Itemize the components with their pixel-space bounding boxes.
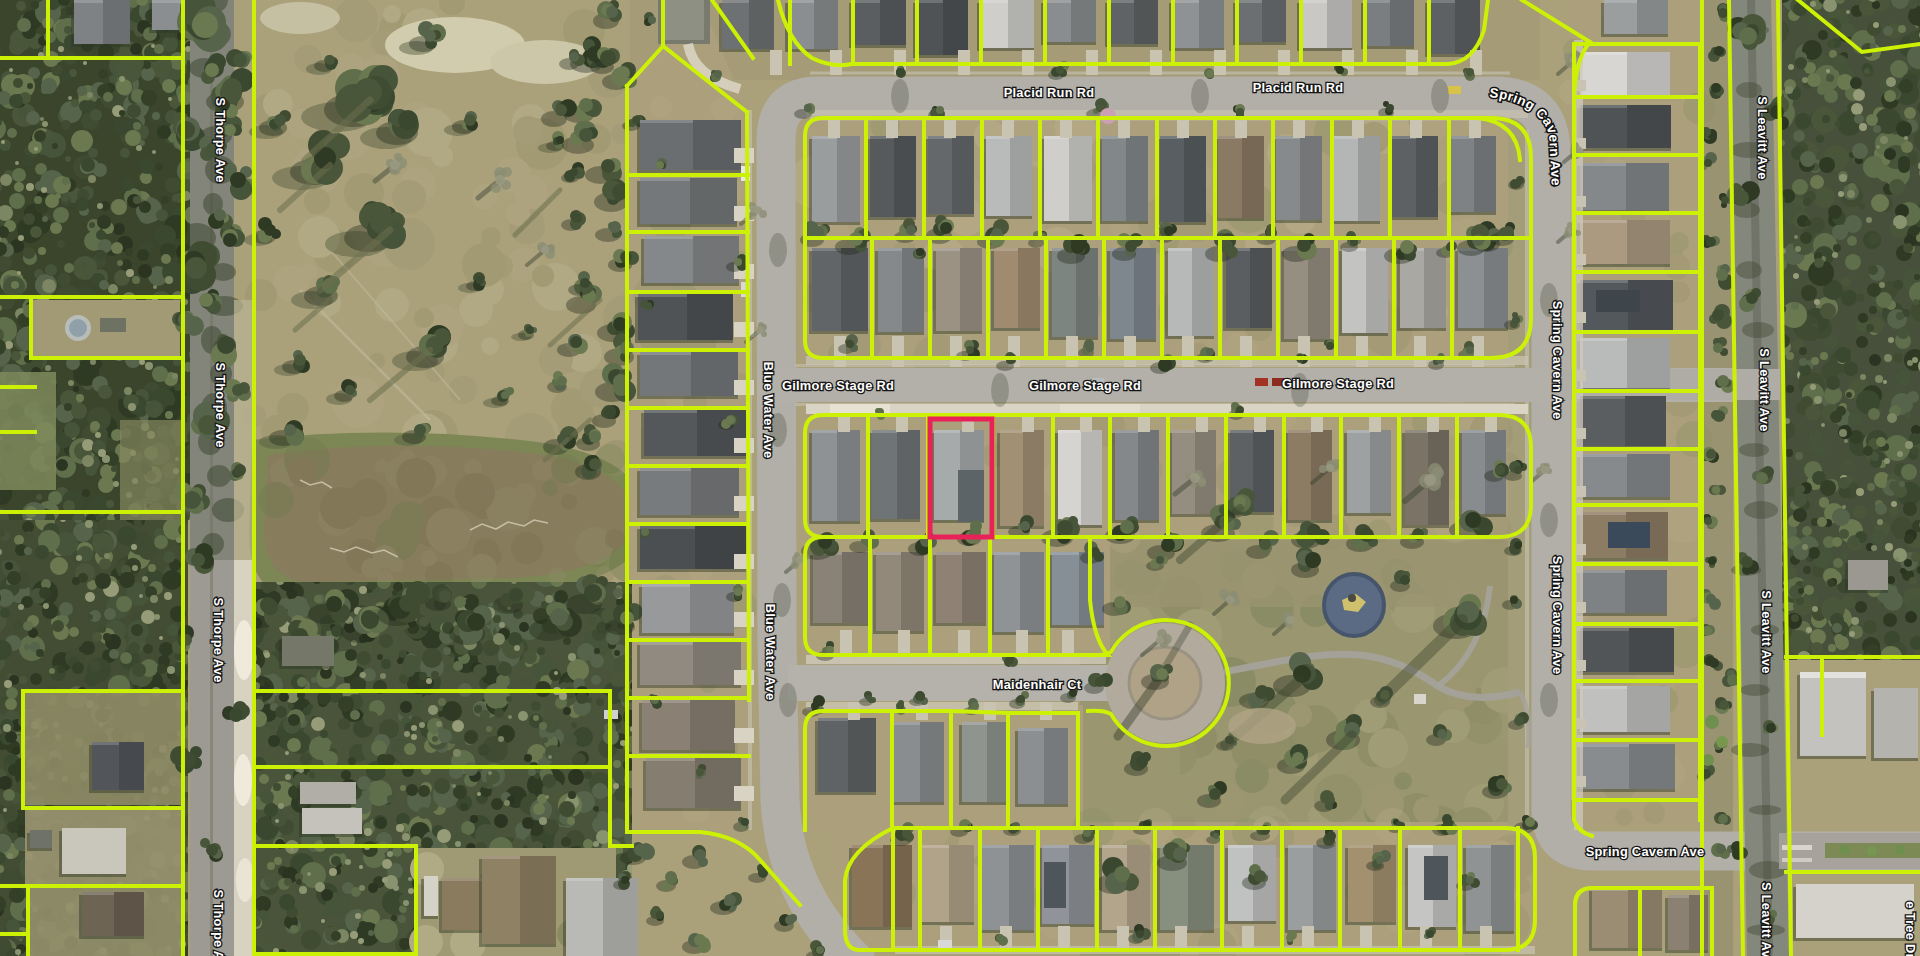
svg-text:S Leavitt Ave: S Leavitt Ave bbox=[1757, 348, 1772, 431]
svg-text:Blue Water Ave: Blue Water Ave bbox=[763, 604, 778, 701]
svg-text:S Thorpe Ave: S Thorpe Ave bbox=[213, 362, 228, 447]
svg-text:Blue Water Ave: Blue Water Ave bbox=[761, 362, 776, 459]
svg-text:Placid Run Rd: Placid Run Rd bbox=[1004, 85, 1095, 100]
svg-text:Spring Cavern Ave: Spring Cavern Ave bbox=[1550, 301, 1565, 420]
svg-text:S Leavitt Ave: S Leavitt Ave bbox=[1759, 590, 1774, 673]
svg-text:Placid Run Rd: Placid Run Rd bbox=[1253, 80, 1344, 95]
svg-text:S Thorpe Ave: S Thorpe Ave bbox=[211, 597, 226, 682]
svg-text:Maidenhair Ct: Maidenhair Ct bbox=[993, 677, 1082, 692]
svg-text:S Leavitt Av: S Leavitt Av bbox=[1759, 882, 1774, 956]
svg-text:e Tree Dr: e Tree Dr bbox=[1903, 901, 1918, 956]
svg-text:Spring Cavern Ave: Spring Cavern Ave bbox=[1586, 844, 1705, 859]
svg-text:S Leavitt Ave: S Leavitt Ave bbox=[1755, 96, 1770, 179]
svg-text:Spring Cavern Ave: Spring Cavern Ave bbox=[1550, 556, 1565, 675]
svg-text:Gilmore Stage Rd: Gilmore Stage Rd bbox=[782, 378, 894, 393]
svg-text:Gilmore Stage Rd: Gilmore Stage Rd bbox=[1282, 376, 1394, 391]
svg-text:S Thorpe Ave: S Thorpe Ave bbox=[213, 97, 228, 182]
svg-text:S Thorpe A: S Thorpe A bbox=[211, 890, 226, 956]
svg-text:Gilmore Stage Rd: Gilmore Stage Rd bbox=[1029, 378, 1141, 393]
